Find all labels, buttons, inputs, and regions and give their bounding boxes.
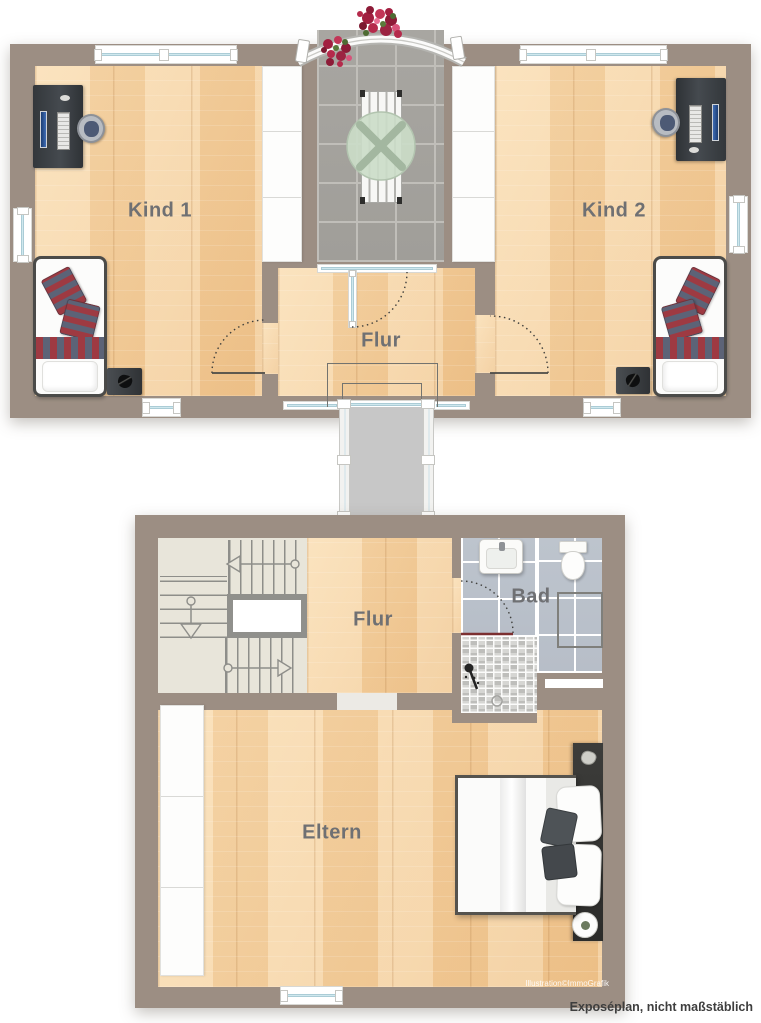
window-kind1-south (142, 398, 181, 417)
bathtub-outline (557, 592, 603, 648)
desk-kind2 (676, 78, 726, 161)
bin-icon (117, 373, 134, 389)
room-label-flur-bottom: Flur (353, 609, 393, 632)
window-kind1-west (13, 208, 32, 262)
office-chair-kind1 (77, 114, 105, 143)
folded-duvet (42, 361, 98, 392)
nightstand-kind2 (616, 367, 650, 394)
dark-cushion (541, 843, 578, 881)
window-eltern-south (280, 986, 343, 1005)
stairs-lower-flight (225, 638, 303, 693)
striped-pillow (59, 298, 101, 341)
decor-shell (579, 749, 598, 767)
folded-duvet (662, 361, 718, 392)
desk-kind1 (33, 85, 83, 168)
office-chair-kind2 (652, 108, 680, 137)
shower-floor (461, 637, 537, 713)
room-label-kind1: Kind 1 (128, 200, 192, 223)
balcony-door-sill (317, 264, 437, 273)
window-kind1-north (95, 45, 237, 64)
stairwell-void (227, 594, 307, 638)
faucet-icon (499, 542, 505, 551)
illustration-credit: Illustration©ImmoGrafik (495, 979, 609, 988)
kind2-doorway-floor (475, 315, 495, 373)
corridor-post (421, 399, 435, 409)
monitor-icon (40, 111, 47, 148)
room-label-eltern: Eltern (302, 822, 362, 845)
duvet-fold (500, 778, 526, 912)
bath-shelf (545, 679, 603, 688)
striped-blanket (656, 337, 724, 359)
desk-accessory (689, 147, 699, 153)
bed-kind2 (653, 256, 727, 397)
balcony-door-leaf (348, 270, 357, 328)
garden-bench (361, 91, 402, 203)
eltern-doorway-threshold (337, 693, 397, 710)
wardrobe-eltern (160, 705, 204, 976)
plan-disclaimer: Exposéplan, nicht maßstäblich (493, 1000, 753, 1014)
window-kind2-north (520, 45, 667, 64)
wardrobe-kind1 (262, 66, 302, 262)
corridor-post (421, 455, 435, 465)
stairs-winders (160, 576, 227, 638)
wardrobe-kind2 (452, 66, 495, 262)
double-bed (455, 775, 576, 915)
room-label-kind2: Kind 2 (582, 200, 646, 223)
bin-icon (625, 373, 641, 389)
monitor-icon (712, 104, 719, 141)
window-kind2-east (729, 196, 748, 253)
nightstand-kind1 (107, 368, 142, 395)
corridor-post (337, 399, 351, 409)
decor-plate (572, 912, 598, 938)
corridor-post (337, 455, 351, 465)
keyboard-icon (57, 112, 70, 150)
keyboard-icon (689, 105, 702, 143)
sink (479, 539, 523, 574)
floor-plan: Kind 1 Kind 2 Flur Flur Bad Eltern Illus… (0, 0, 761, 1023)
room-label-bad: Bad (511, 586, 550, 609)
striped-blanket (36, 337, 104, 359)
stairs-upper-flight (228, 540, 303, 594)
room-label-flur-top: Flur (361, 330, 401, 353)
window-kind2-south (583, 398, 621, 417)
desk-accessory (60, 95, 70, 101)
bad-doorway-floor (452, 578, 461, 633)
kind1-doorway-floor (262, 323, 278, 374)
bed-kind1 (33, 256, 107, 397)
toilet-bowl (561, 551, 585, 580)
